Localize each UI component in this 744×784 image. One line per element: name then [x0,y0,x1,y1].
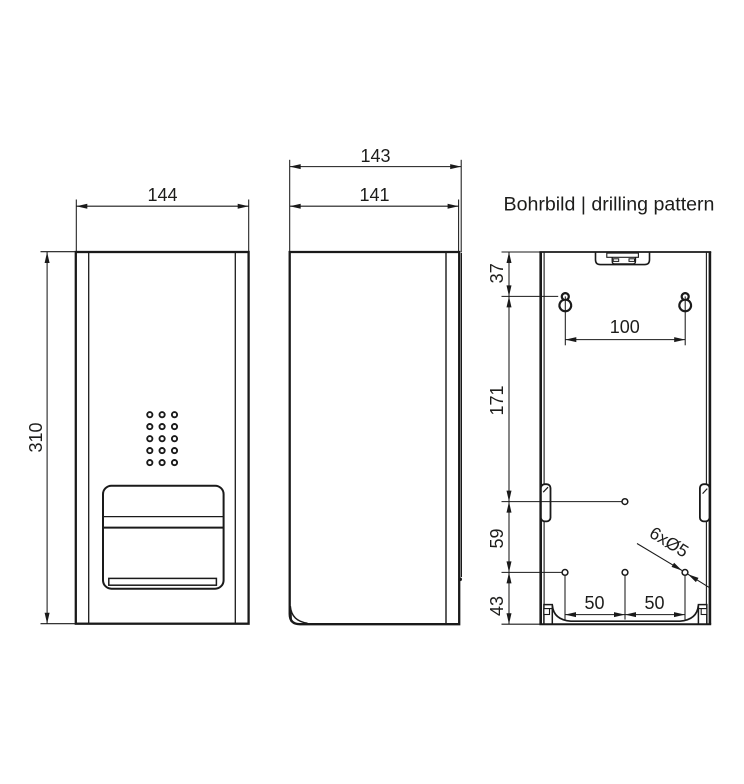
svg-text:37: 37 [487,263,507,283]
svg-text:310: 310 [26,422,46,452]
svg-text:100: 100 [610,317,640,337]
svg-text:141: 141 [359,185,389,205]
svg-text:143: 143 [360,146,390,166]
svg-text:144: 144 [147,185,177,205]
svg-text:50: 50 [584,593,604,613]
svg-text:59: 59 [487,528,507,548]
svg-text:50: 50 [644,593,664,613]
svg-text:43: 43 [487,596,507,616]
svg-text:Bohrbild | drilling pattern: Bohrbild | drilling pattern [504,194,715,216]
svg-text:171: 171 [487,385,507,415]
